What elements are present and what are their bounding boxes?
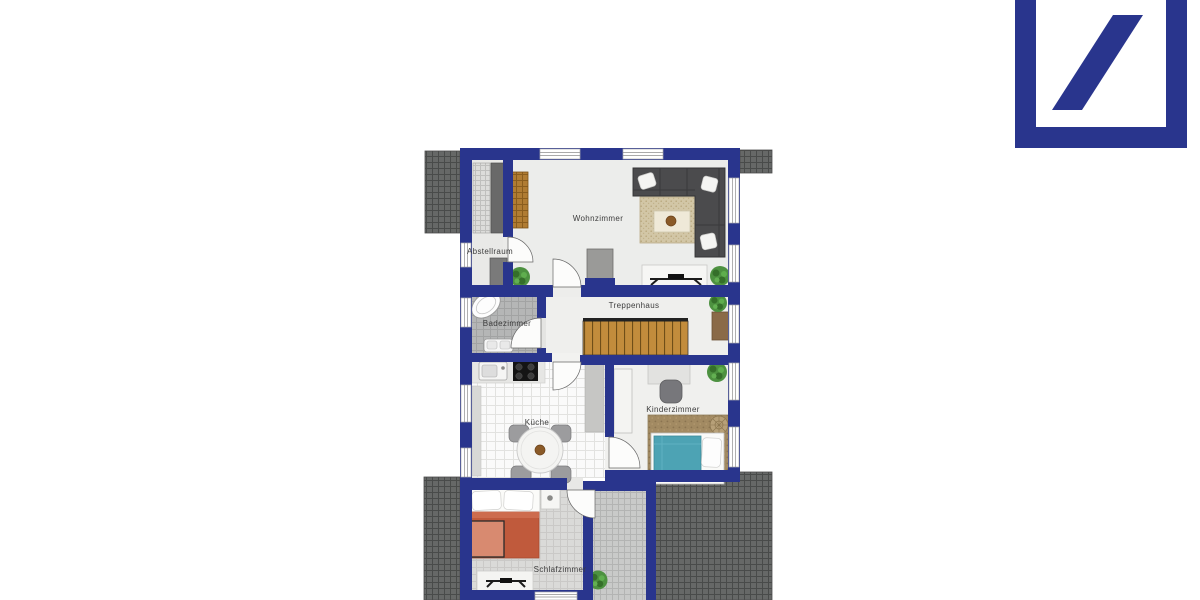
window (729, 427, 739, 467)
bed-pillow (472, 490, 502, 510)
room-label-badezimmer: Badezimmer (483, 319, 531, 328)
roof-bottom-left (424, 477, 460, 600)
bed-pillow (701, 438, 721, 468)
wardrobe (614, 369, 632, 433)
roof-top-right (740, 150, 772, 173)
window (729, 245, 739, 282)
roof-bottom-right (655, 472, 772, 600)
kitchen-counter-left (472, 386, 481, 476)
window (461, 385, 471, 422)
room-label-abstellraum: Abstellraum (467, 247, 513, 256)
room-label-schlafzimmer: Schlafzimmer (534, 565, 587, 574)
window (461, 298, 471, 327)
window (729, 363, 739, 400)
sofa-pillow (700, 232, 718, 250)
plant (710, 266, 730, 286)
double-bed (467, 487, 540, 559)
page: Wohnzimmer Abstellraum Treppenhaus Badez… (0, 0, 1200, 600)
floor-plan: Wohnzimmer Abstellraum Treppenhaus Badez… (0, 0, 1200, 600)
window (623, 149, 663, 159)
roof-top-left (425, 151, 460, 233)
desk-chair (660, 380, 682, 403)
staircase (583, 318, 688, 355)
room-label-kueche: Küche (525, 418, 550, 427)
kitchen-counter-right (585, 360, 604, 432)
chimney (587, 249, 613, 281)
tv-sideboard (642, 265, 707, 287)
room-label-wohnzimmer: Wohnzimmer (573, 214, 623, 223)
threshold (552, 353, 580, 362)
storage-cabinet (491, 163, 505, 233)
window (461, 448, 471, 477)
window (535, 592, 577, 600)
bed-pillow (503, 490, 533, 510)
rug-medallion (710, 416, 728, 434)
dining-table (517, 427, 563, 473)
room-label-kinderzimmer: Kinderzimmer (646, 405, 700, 414)
folded-blanket (470, 521, 504, 557)
kitchen-sink (479, 362, 507, 380)
cooktop (513, 361, 538, 381)
room-label-treppenhaus: Treppenhaus (609, 301, 660, 310)
window (729, 305, 739, 343)
coffee-table (654, 211, 690, 232)
nightstand (541, 488, 560, 509)
hall-cabinet (712, 312, 729, 340)
bathroom-sink (484, 339, 513, 352)
tv-sideboard-bedroom (477, 571, 533, 592)
window (729, 178, 739, 223)
window (540, 149, 580, 159)
storage-shelf (473, 163, 490, 233)
